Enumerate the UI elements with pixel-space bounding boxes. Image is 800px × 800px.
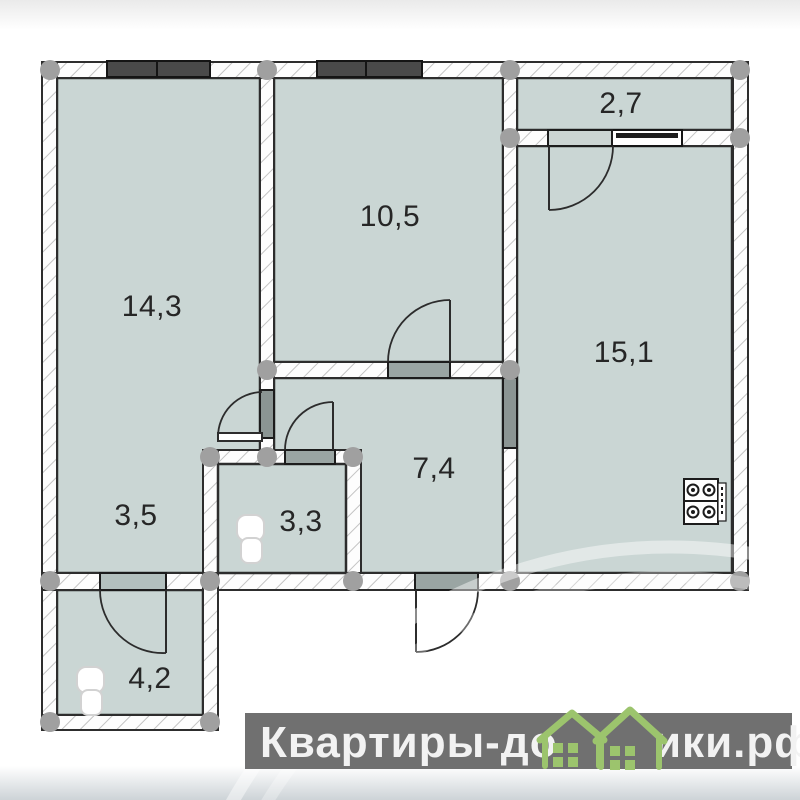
wall-segment: [503, 78, 517, 378]
wall-junction-dot: [40, 60, 60, 80]
floor-plan-image: 14,3 10,5 2,7 15,1 7,4 3,5 3,3 4,2 Кварт…: [0, 0, 800, 800]
wall-segment: [346, 450, 361, 573]
watermark-bar: Квартиры-до ики.рф: [245, 710, 800, 770]
wall-segment: [203, 450, 218, 573]
toilet-icon: [77, 667, 104, 715]
toilet-bowl: [81, 690, 102, 715]
room-area-label: 7,4: [412, 452, 455, 485]
wall-junction-dot: [343, 447, 363, 467]
wall-junction-dot: [257, 447, 277, 467]
wall-segment: [422, 62, 748, 78]
window-icon: [157, 61, 210, 77]
room-area-label: 3,5: [114, 499, 157, 532]
wall-segment: [682, 130, 733, 146]
toilet-bowl: [241, 538, 262, 563]
wall-junction-dot: [500, 128, 520, 148]
wc-4-2-fill: [57, 590, 203, 715]
wall-segment: [260, 78, 274, 390]
wall-junction-dot: [730, 60, 750, 80]
wall-junction-dot: [343, 571, 363, 591]
wall-junction-dot: [257, 360, 277, 380]
wall-segment: [274, 362, 388, 378]
door-threshold: [100, 573, 166, 590]
balcony-door-threshold: [548, 130, 612, 146]
wall-junction-dot: [730, 128, 750, 148]
room-area-label: 15,1: [594, 336, 654, 369]
room-area-label: 2,7: [599, 87, 642, 120]
wall-segment: [450, 362, 503, 378]
room-area-label: 14,3: [122, 290, 182, 323]
wall-junction-dot: [500, 360, 520, 380]
gas-stove-icon: [684, 479, 726, 524]
room-area-label: 4,2: [128, 662, 171, 695]
wall-junction-dot: [257, 60, 277, 80]
balcony-window-icon: [612, 130, 682, 146]
watermark-text: Квартиры-до ики.рф: [260, 718, 800, 767]
wall-junction-dot: [200, 447, 220, 467]
bottom-gradient-band: [0, 766, 800, 800]
kitchen-doorway-opening: [503, 378, 517, 448]
wall-segment: [517, 130, 548, 146]
wall-junction-dot: [40, 712, 60, 732]
wall-segment: [503, 448, 517, 573]
floor-plan-svg: 14,3 10,5 2,7 15,1 7,4 3,5 3,3 4,2 Кварт…: [0, 0, 800, 800]
door-threshold: [260, 390, 274, 438]
wall-segment: [203, 573, 218, 730]
door-threshold: [285, 450, 335, 464]
room-area-label: 10,5: [360, 200, 420, 233]
window-icon: [366, 61, 422, 77]
wall-segment-left: [42, 62, 57, 730]
wall-junction-dot: [200, 712, 220, 732]
room-area-label: 3,3: [279, 505, 322, 538]
window-icon: [317, 61, 366, 77]
wall-junction-dot: [200, 571, 220, 591]
top-gradient-band: [0, 0, 800, 30]
window-icon: [107, 61, 157, 77]
wall-junction-dot: [500, 60, 520, 80]
wall-junction-dot: [40, 571, 60, 591]
wall-segment: [42, 715, 218, 730]
toilet-icon: [237, 515, 264, 563]
door-threshold: [388, 362, 450, 378]
door-leaf: [218, 433, 262, 441]
